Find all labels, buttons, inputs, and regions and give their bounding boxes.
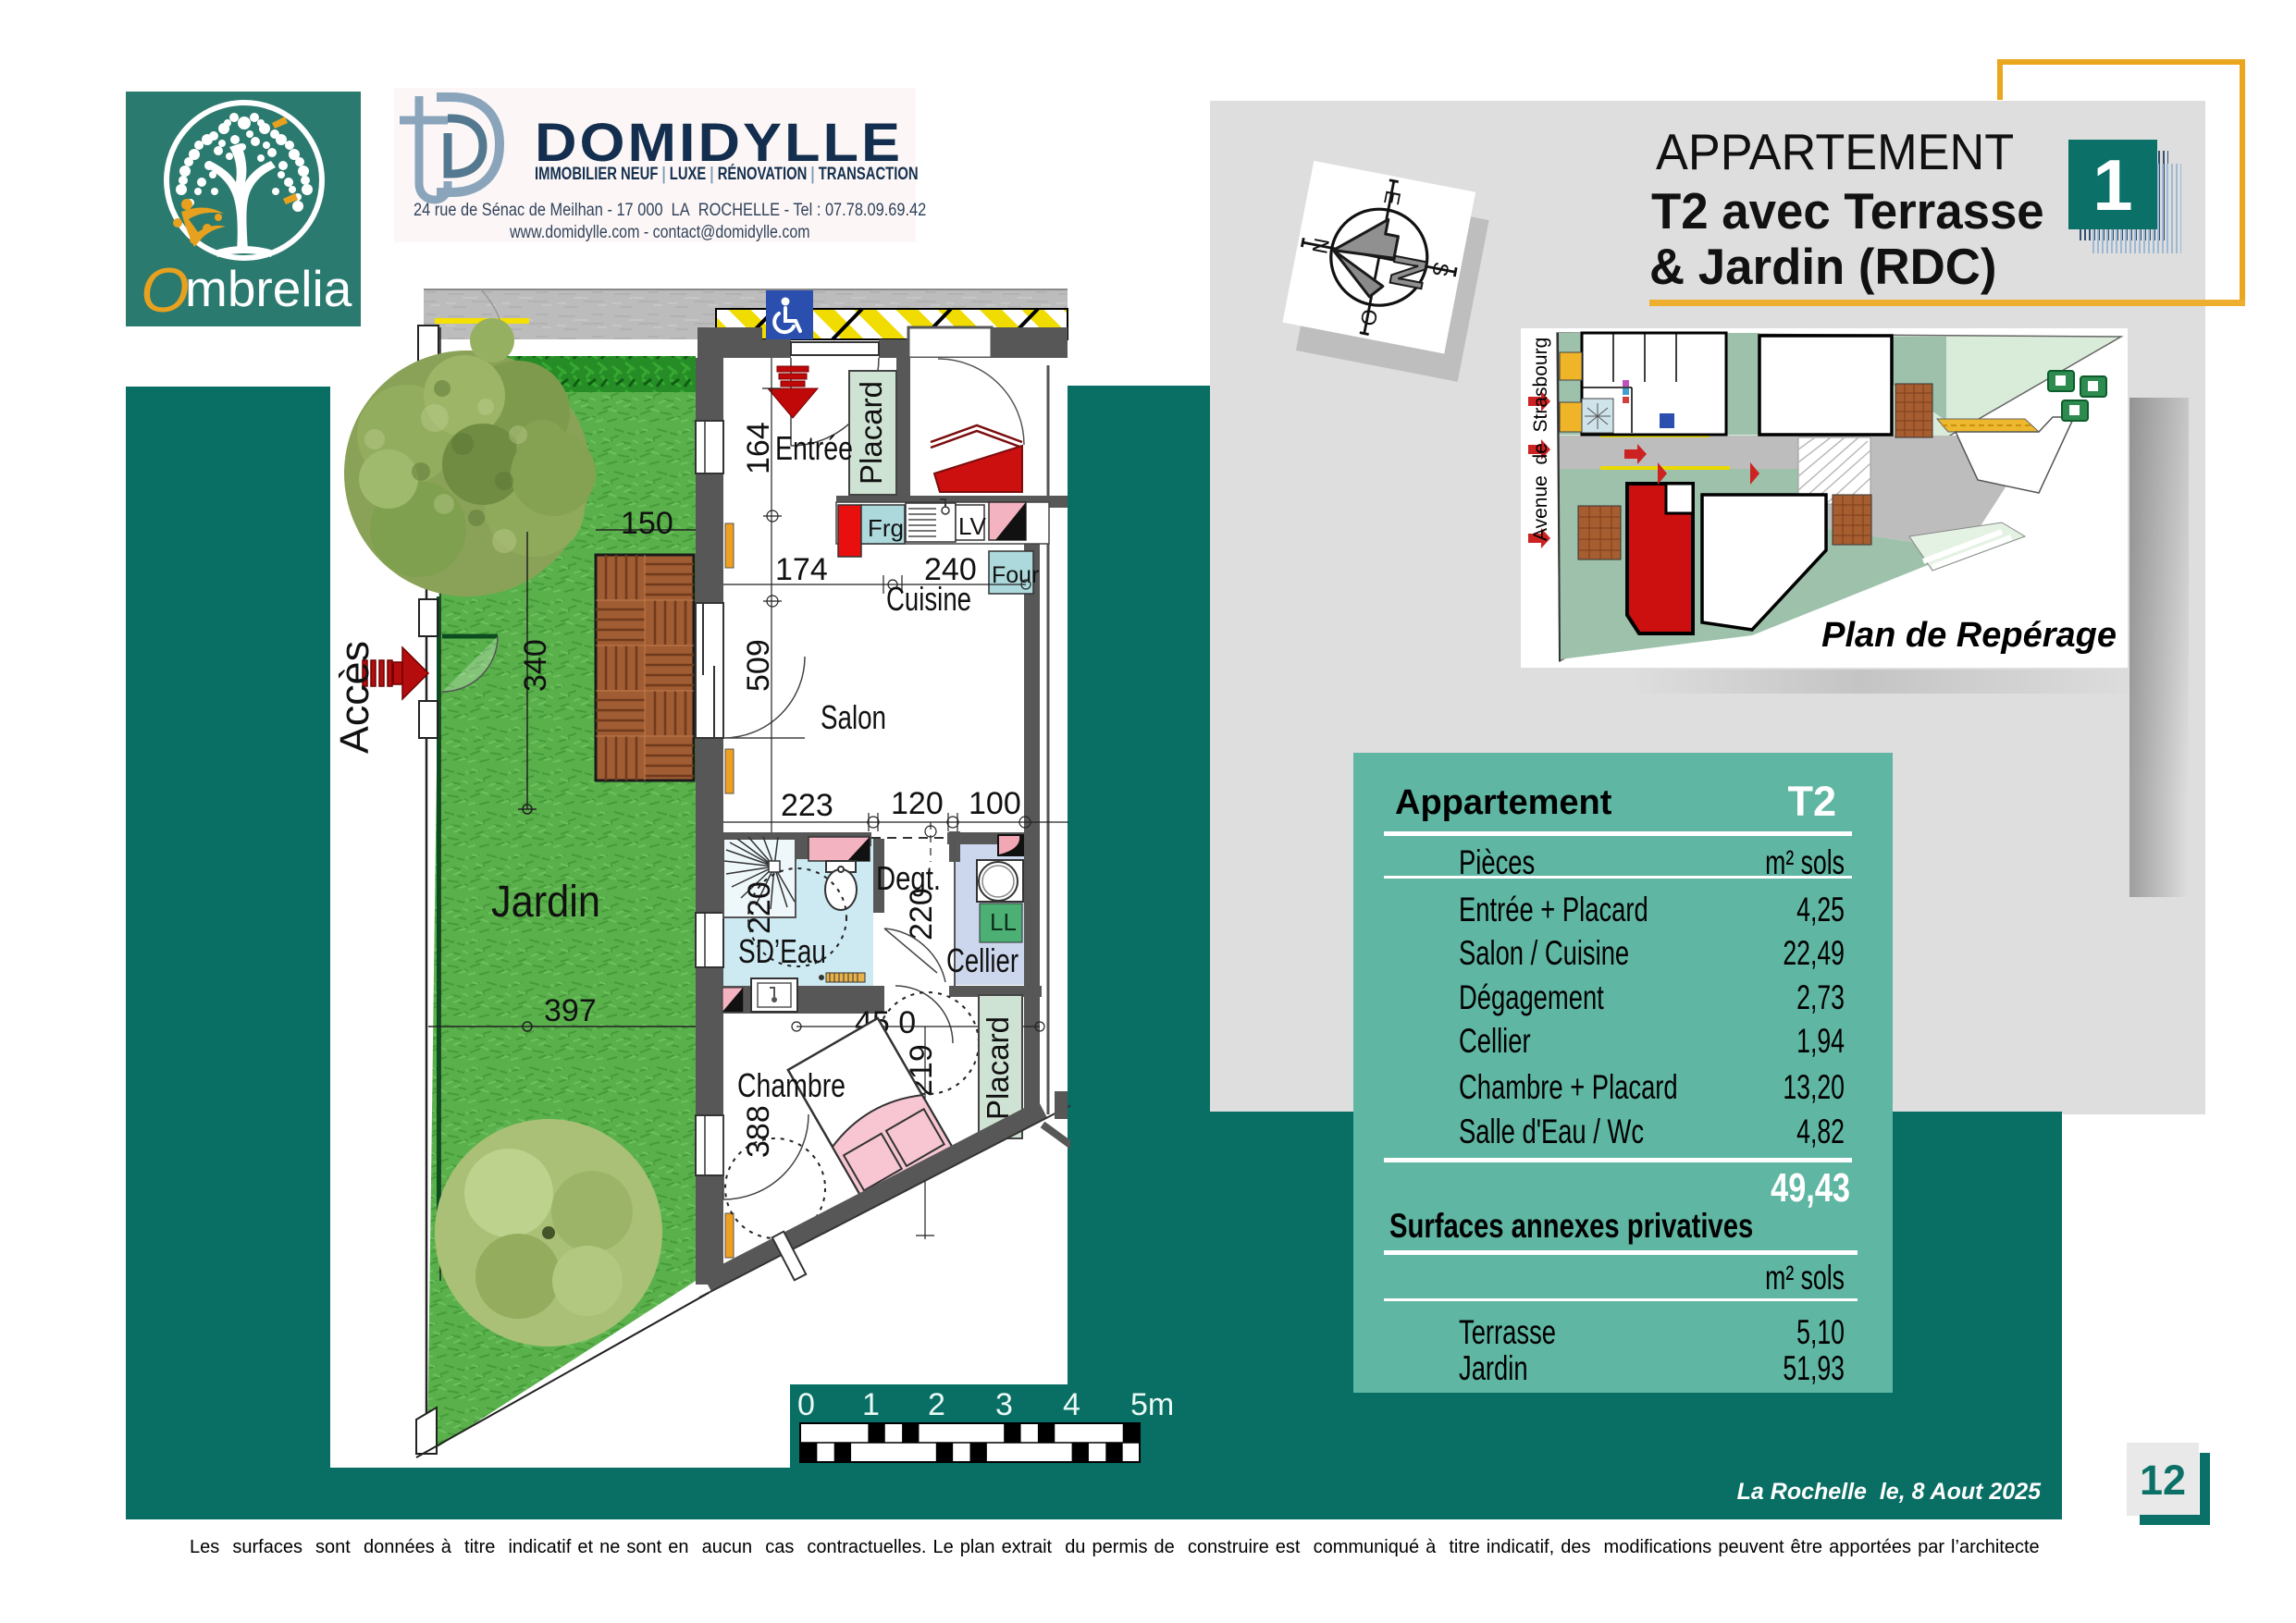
svg-text:223: 223 [781,788,833,823]
svg-text:LV: LV [958,512,987,540]
svg-text:Accès: Accès [332,641,377,754]
svg-text:174: 174 [775,552,828,587]
svg-text:4: 4 [1063,1387,1080,1422]
svg-text:100: 100 [969,786,1021,821]
svg-text:Salon: Salon [821,698,886,736]
svg-text:mbrelia: mbrelia [185,260,352,317]
svg-text:164: 164 [741,422,776,474]
svg-text:509: 509 [741,639,776,692]
svg-text:397: 397 [544,993,597,1028]
svg-text:Frg: Frg [868,514,904,542]
svg-text:220: 220 [742,881,777,934]
svg-text:Placard: Placard [981,1016,1015,1120]
svg-text:3: 3 [995,1387,1013,1422]
svg-text:LL: LL [990,908,1017,936]
svg-text:Placard: Placard [854,381,888,485]
svg-text:Chambre: Chambre [737,1066,846,1104]
svg-text:150: 150 [621,506,673,541]
svg-text:1: 1 [862,1387,880,1422]
svg-text:2: 2 [928,1387,945,1422]
svg-text:220: 220 [904,888,939,941]
svg-text:Avenue de Strasbourg: Avenue de Strasbourg [1530,338,1551,541]
svg-text:388: 388 [741,1105,776,1158]
svg-text:Entrée: Entrée [775,429,853,467]
svg-text:O: O [141,255,190,326]
svg-text:Cellier: Cellier [946,941,1018,979]
svg-text:SD’Eau: SD’Eau [738,932,826,970]
svg-text:340: 340 [518,639,553,692]
svg-text:5m: 5m [1130,1387,1174,1422]
svg-text:120: 120 [891,786,944,821]
svg-text:Jardin: Jardin [491,878,600,927]
svg-text:Cuisine: Cuisine [886,580,971,618]
svg-text:0: 0 [797,1387,815,1422]
